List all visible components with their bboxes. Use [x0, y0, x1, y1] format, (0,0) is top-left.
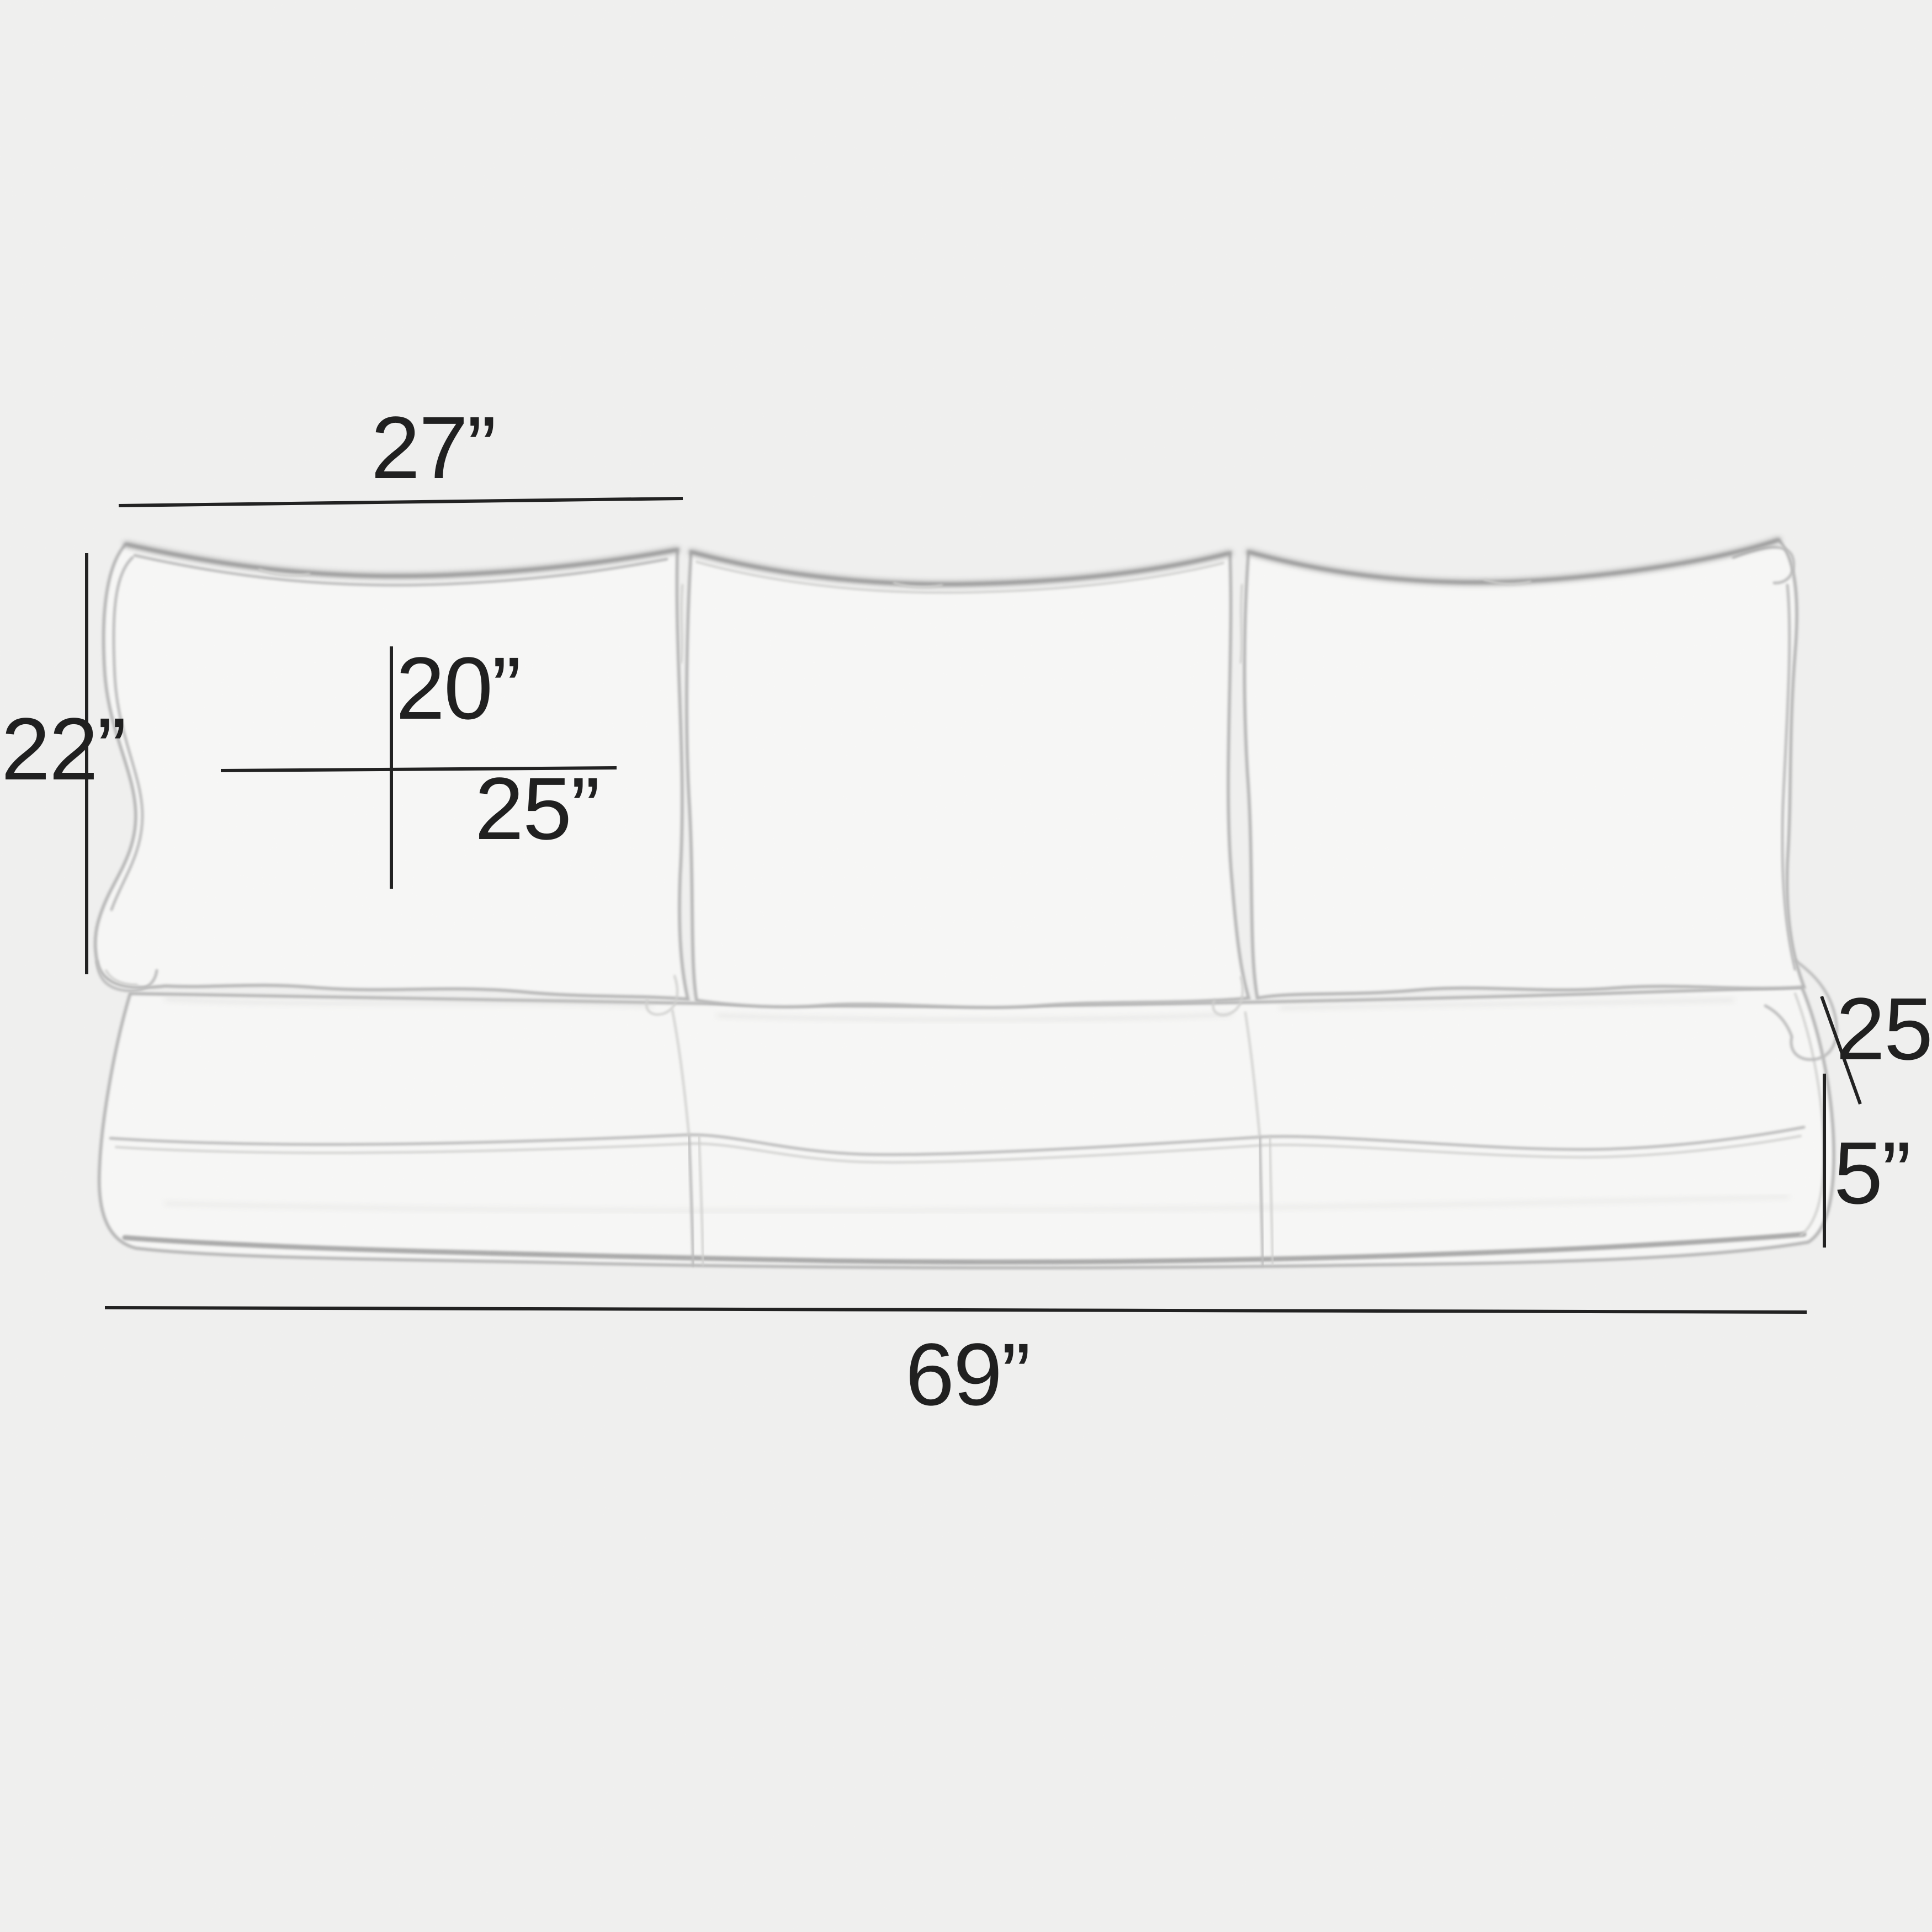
- dimension-label-back-pillow-width: 27”: [371, 398, 495, 497]
- dimension-label-back-pillow-inner-height: 20”: [396, 639, 520, 737]
- sofa-dimension-diagram: 27” 22” 20” 25” 25” 5” 69”: [0, 0, 1932, 1932]
- seat-base: [99, 987, 1834, 1268]
- back-pillow-center: [687, 552, 1249, 1007]
- dimension-label-seat-depth: 25”: [1836, 979, 1932, 1078]
- back-pillow-right: [1245, 540, 1804, 998]
- dimension-label-back-pillow-height: 22”: [1, 699, 125, 798]
- dimension-label-overall-width: 69”: [905, 1325, 1029, 1424]
- diagram-stage: 27” 22” 20” 25” 25” 5” 69”: [0, 0, 1932, 1932]
- dimension-label-back-pillow-inner-width: 25”: [475, 759, 599, 858]
- sofa-sketch: [95, 540, 1837, 1268]
- dimension-label-seat-base-thickness: 5”: [1834, 1123, 1910, 1222]
